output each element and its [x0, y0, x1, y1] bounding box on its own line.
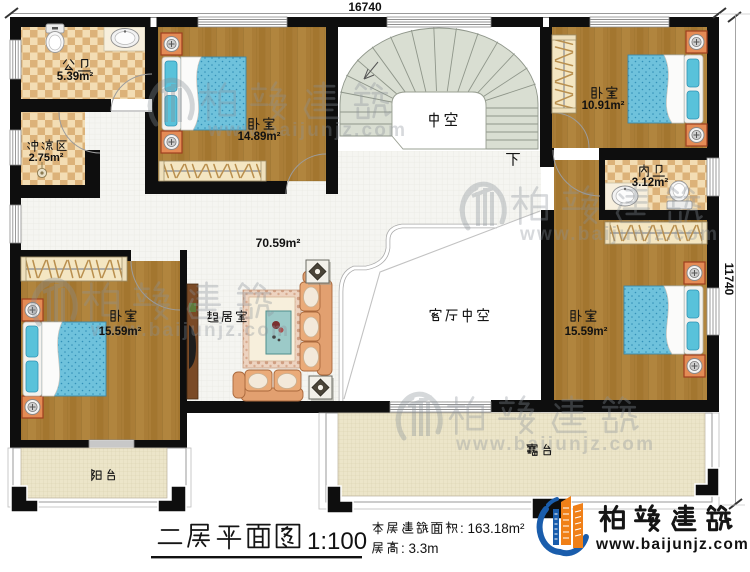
svg-text:16740: 16740	[348, 0, 382, 14]
svg-text:11740: 11740	[722, 263, 736, 296]
svg-text:www.baijunjz.com: www.baijunjz.com	[595, 536, 749, 553]
svg-text:10.91m²: 10.91m²	[582, 100, 625, 112]
svg-text:5.39m²: 5.39m²	[57, 71, 94, 83]
svg-text:www.baijunjz.com: www.baijunjz.com	[519, 224, 719, 245]
svg-text:: 163.18m²: : 163.18m²	[460, 521, 525, 536]
svg-text:www.baijunjz.com: www.baijunjz.com	[455, 434, 655, 455]
svg-text:14.89m²: 14.89m²	[238, 131, 281, 143]
svg-text:1:100: 1:100	[307, 528, 367, 555]
svg-text:: 3.3m: : 3.3m	[401, 541, 439, 556]
svg-text:2.75m²: 2.75m²	[29, 152, 64, 164]
svg-text:70.59m²: 70.59m²	[256, 236, 301, 250]
svg-text:15.59m²: 15.59m²	[565, 326, 608, 338]
svg-text:3.12m²: 3.12m²	[632, 177, 669, 189]
svg-text:15.59m²: 15.59m²	[99, 326, 142, 338]
